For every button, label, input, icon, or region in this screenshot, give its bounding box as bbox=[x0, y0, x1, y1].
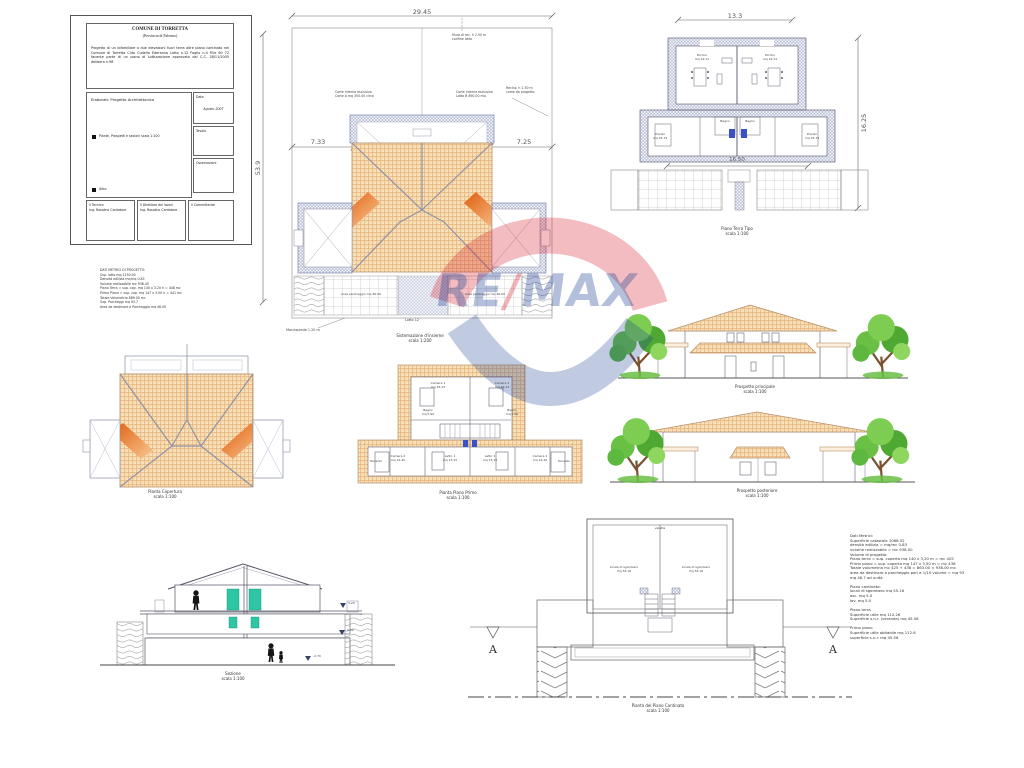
elaborati-item-1: Piante, Prospetti e sezioni scala 1:100 bbox=[99, 134, 187, 138]
osservazioni-box: Osservazioni bbox=[193, 158, 234, 193]
direttore-name: Ing. Rosolino Cantatore bbox=[140, 208, 177, 212]
remax-logo-text: RE/MAX bbox=[423, 264, 650, 317]
text-line: Area da destinare a Parcheggio mq 46.00 bbox=[100, 305, 230, 310]
bullet-square-icon bbox=[92, 135, 96, 139]
tecnico-box: Il Tecnico Ing. Rosolino Cantatore bbox=[86, 200, 135, 241]
tecnico-label: Il Tecnico bbox=[89, 203, 104, 207]
data-value: Agosto 2007 bbox=[194, 107, 233, 111]
osservazioni-label: Osservazioni bbox=[196, 161, 216, 165]
elaborati-heading: Elaborati: Progetto Architettonico bbox=[91, 97, 154, 102]
remax-max: MAX bbox=[517, 264, 642, 317]
project-description: Progetto di un bifamiliare a due elevazi… bbox=[91, 46, 229, 64]
committente-label: Il Committente bbox=[191, 203, 215, 207]
metric-block: Dati Metrici:Superficie catastale 1068.5… bbox=[850, 534, 965, 640]
tavola-label: Tavola bbox=[196, 129, 206, 133]
commune-name: COMUNE DI TORRETTA bbox=[87, 27, 233, 32]
elaborati-item-2: Altro bbox=[99, 187, 107, 191]
remax-balloon-bottom bbox=[462, 324, 640, 389]
province: (Provincia di Palermo) bbox=[87, 34, 233, 38]
note-block: DATI METRICI DI PROGETTO:Sup. lotto mq 1… bbox=[100, 268, 230, 309]
title-block: COMUNE DI TORRETTA (Provincia di Palermo… bbox=[70, 15, 252, 245]
elaborati-box: Elaborati: Progetto Architettonico Piant… bbox=[86, 92, 192, 198]
committente-box: Il Committente bbox=[188, 200, 234, 241]
direttore-box: Il Direttore dei lavori Ing. Rosolino Ca… bbox=[137, 200, 186, 241]
data-box: Data Agosto 2007 bbox=[193, 92, 234, 124]
title-block-header: COMUNE DI TORRETTA (Provincia di Palermo… bbox=[86, 23, 234, 89]
direttore-label: Il Direttore dei lavori bbox=[140, 203, 173, 207]
tavola-box: Tavola bbox=[193, 126, 234, 156]
remax-re: RE bbox=[432, 264, 507, 317]
drawing-sheet: RE/MAX COMUNE DI TORRETTA (Provincia di … bbox=[0, 0, 1024, 768]
bullet-square-icon bbox=[92, 188, 96, 192]
data-label: Data bbox=[196, 95, 204, 99]
text-line: superficie s.n.r. mq 45.56 bbox=[850, 636, 965, 641]
tecnico-name: Ing. Rosolino Cantatore bbox=[89, 208, 126, 212]
